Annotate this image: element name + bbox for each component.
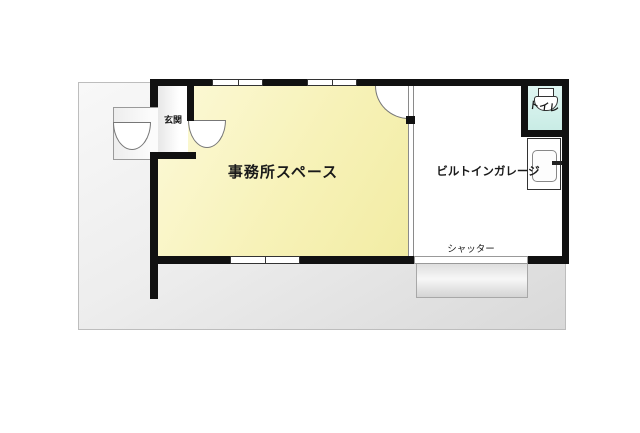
window-strip-icon: [212, 79, 263, 86]
shutter-apron: [416, 264, 528, 298]
office-room-label: 事務所スペース: [158, 165, 408, 182]
partition-wall-cap: [406, 116, 415, 124]
wall-left-upper: [150, 79, 158, 107]
garage-room-label: ビルトインガレージ: [414, 166, 562, 179]
floor-plan: 事務所スペース ビルトインガレージ 玄関 トイレ シャッター: [0, 0, 640, 433]
entrance-wall-bottom: [150, 152, 196, 159]
window-strip-icon: [230, 256, 300, 264]
entrance-room-label: 玄関: [157, 116, 189, 126]
toilet-wall-bottom: [521, 130, 562, 137]
window-strip-icon: [307, 79, 357, 86]
wall-left-lower: [150, 152, 158, 299]
shutter-opening: [414, 256, 528, 264]
shutter-label: シャッター: [414, 245, 528, 255]
